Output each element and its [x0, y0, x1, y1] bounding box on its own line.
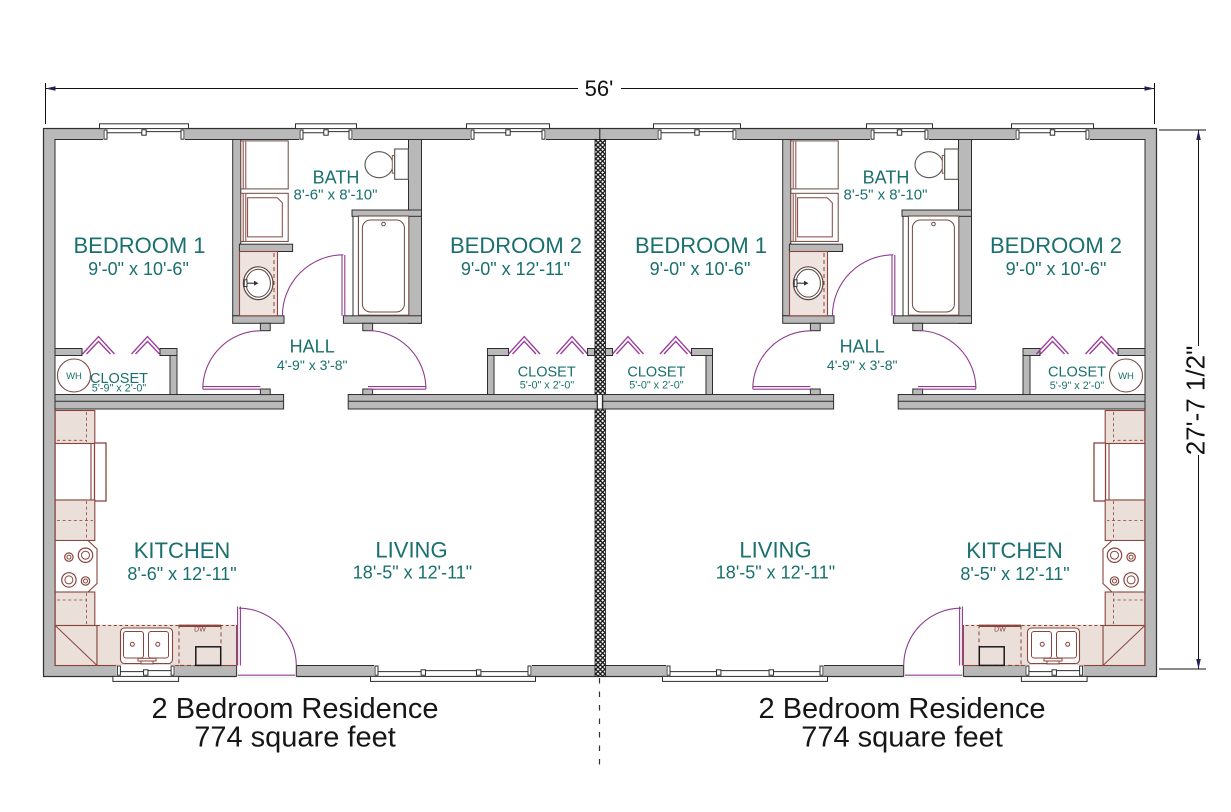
- svg-text:56': 56': [585, 76, 614, 101]
- svg-text:2 Bedroom Residence: 2 Bedroom Residence: [759, 693, 1046, 725]
- svg-text:774 square feet: 774 square feet: [194, 722, 396, 754]
- svg-text:9'-0" x 10'-6": 9'-0" x 10'-6": [88, 259, 189, 279]
- svg-text:WH: WH: [66, 371, 82, 382]
- svg-text:9'-0" x 12'-11": 9'-0" x 12'-11": [461, 259, 570, 279]
- svg-text:5'-0" x 2'-0": 5'-0" x 2'-0": [629, 380, 684, 392]
- svg-text:4'-9" x 3'-8": 4'-9" x 3'-8": [277, 357, 348, 373]
- svg-text:KITCHEN: KITCHEN: [134, 538, 231, 563]
- svg-text:774 square feet: 774 square feet: [801, 722, 1003, 754]
- svg-text:CLOSET: CLOSET: [1048, 365, 1106, 381]
- svg-text:BEDROOM 2: BEDROOM 2: [990, 233, 1122, 258]
- svg-text:LIVING: LIVING: [375, 538, 447, 563]
- svg-text:8'-5" x 12'-11": 8'-5" x 12'-11": [960, 564, 1069, 584]
- svg-text:DW: DW: [994, 627, 1006, 634]
- svg-text:KITCHEN: KITCHEN: [966, 538, 1063, 563]
- svg-text:LIVING: LIVING: [739, 538, 811, 563]
- svg-text:8'-6" x 8'-10": 8'-6" x 8'-10": [294, 187, 378, 204]
- svg-text:18'-5" x 12'-11": 18'-5" x 12'-11": [353, 563, 472, 583]
- svg-text:4'-9" x 3'-8": 4'-9" x 3'-8": [827, 357, 898, 373]
- svg-text:18'-5" x 12'-11": 18'-5" x 12'-11": [716, 563, 835, 583]
- svg-text:BEDROOM 2: BEDROOM 2: [450, 233, 582, 258]
- svg-text:HALL: HALL: [840, 337, 885, 357]
- svg-text:5'-9" x 2'-0": 5'-9" x 2'-0": [1050, 380, 1105, 392]
- svg-text:9'-0" x 10'-6": 9'-0" x 10'-6": [650, 259, 751, 279]
- svg-text:8'-5" x 8'-10": 8'-5" x 8'-10": [844, 187, 928, 204]
- svg-text:27'-7 1/2": 27'-7 1/2": [1181, 346, 1211, 456]
- svg-text:DW: DW: [194, 627, 206, 634]
- svg-text:8'-6" x 12'-11": 8'-6" x 12'-11": [127, 564, 236, 584]
- svg-text:9'-0" x 10'-6": 9'-0" x 10'-6": [1006, 259, 1107, 279]
- svg-text:BATH: BATH: [863, 168, 910, 188]
- svg-text:CLOSET: CLOSET: [518, 365, 576, 381]
- svg-text:BEDROOM 1: BEDROOM 1: [73, 233, 205, 258]
- svg-text:BEDROOM 1: BEDROOM 1: [635, 233, 767, 258]
- svg-text:BATH: BATH: [313, 168, 360, 188]
- svg-text:CLOSET: CLOSET: [627, 365, 685, 381]
- svg-text:WH: WH: [1118, 371, 1134, 382]
- svg-text:5'-0" x 2'-0": 5'-0" x 2'-0": [520, 380, 575, 392]
- svg-text:5'-9" x 2'-0": 5'-9" x 2'-0": [92, 383, 147, 395]
- svg-text:HALL: HALL: [290, 337, 335, 357]
- svg-text:2 Bedroom Residence: 2 Bedroom Residence: [152, 693, 439, 725]
